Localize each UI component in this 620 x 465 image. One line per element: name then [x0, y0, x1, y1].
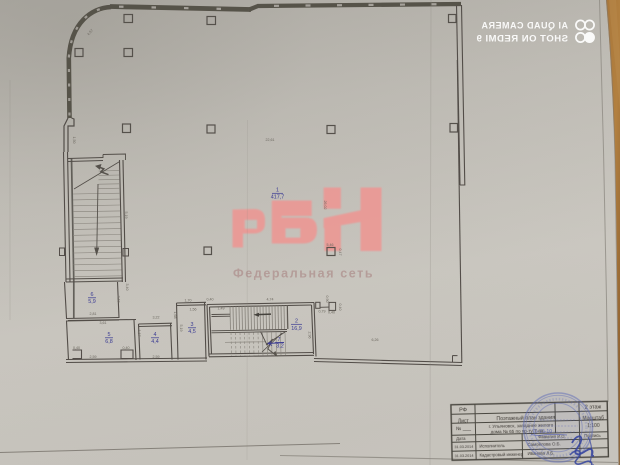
svg-text:3,2: 3,2	[276, 344, 284, 350]
svg-text:AI QUAD CAMERA: AI QUAD CAMERA	[481, 21, 568, 31]
svg-text:0,90: 0,90	[325, 296, 329, 303]
svg-text:SHOT ON REDMI 9: SHOT ON REDMI 9	[476, 34, 568, 45]
svg-text:2,81: 2,81	[90, 312, 97, 316]
svg-text:31.03.2014: 31.03.2014	[454, 445, 473, 449]
svg-text:4,74: 4,74	[267, 298, 274, 302]
svg-text:3,22: 3,22	[153, 316, 160, 320]
svg-text:6,26: 6,26	[372, 338, 379, 342]
svg-text:7: 7	[278, 337, 281, 343]
svg-text:Лист: Лист	[458, 418, 470, 424]
svg-text:2: 2	[295, 319, 298, 325]
svg-text:2,59: 2,59	[90, 355, 97, 359]
svg-text:4,4: 4,4	[151, 339, 159, 345]
svg-text:1,68: 1,68	[173, 312, 177, 319]
svg-text:0,40: 0,40	[338, 304, 342, 311]
svg-text:5,46: 5,46	[327, 243, 334, 247]
svg-text:2,59: 2,59	[153, 355, 160, 359]
svg-text:1: 1	[276, 188, 279, 194]
svg-text:3,40: 3,40	[125, 284, 129, 291]
svg-text:0,40: 0,40	[73, 346, 80, 350]
svg-text:№ ___: № ___	[456, 426, 471, 432]
svg-text:Исполнитель: Исполнитель	[479, 443, 505, 449]
svg-text:1,17: 1,17	[137, 330, 141, 337]
svg-text:4: 4	[154, 332, 157, 338]
svg-text:1,49: 1,49	[218, 307, 225, 311]
svg-text:Федеральная сеть: Федеральная сеть	[233, 267, 374, 281]
svg-text:0,40: 0,40	[207, 298, 214, 302]
svg-text:2,96: 2,96	[308, 332, 312, 339]
svg-text:5,19: 5,19	[124, 212, 128, 219]
svg-text:3: 3	[191, 322, 194, 328]
svg-text:0,40: 0,40	[123, 346, 130, 350]
svg-text:0,47: 0,47	[338, 249, 342, 256]
svg-text:0,40: 0,40	[328, 311, 335, 315]
svg-text:1,56: 1,56	[190, 308, 197, 312]
svg-text:5,19: 5,19	[179, 325, 183, 332]
svg-text:1,70: 1,70	[185, 299, 192, 303]
svg-text:5: 5	[108, 332, 111, 338]
svg-text:6,8: 6,8	[105, 339, 113, 345]
svg-text:3,61: 3,61	[100, 321, 107, 325]
svg-text:0,79: 0,79	[319, 310, 326, 314]
svg-text:РФ: РФ	[459, 407, 467, 413]
svg-text:5,9: 5,9	[88, 299, 96, 305]
svg-text:6: 6	[91, 292, 94, 298]
svg-text:16,9: 16,9	[291, 326, 302, 332]
svg-text:1,50: 1,50	[72, 137, 76, 144]
svg-text:22,61: 22,61	[266, 138, 275, 142]
svg-text:Дата: Дата	[456, 436, 466, 441]
svg-text:26,02: 26,02	[323, 201, 327, 210]
svg-text:2,10: 2,10	[117, 296, 121, 303]
svg-text:Кадастровый инженер: Кадастровый инженер	[480, 452, 524, 458]
svg-text:417,7: 417,7	[271, 195, 285, 201]
svg-text:31.03.2014: 31.03.2014	[455, 454, 474, 458]
svg-text:4,5: 4,5	[188, 329, 196, 335]
